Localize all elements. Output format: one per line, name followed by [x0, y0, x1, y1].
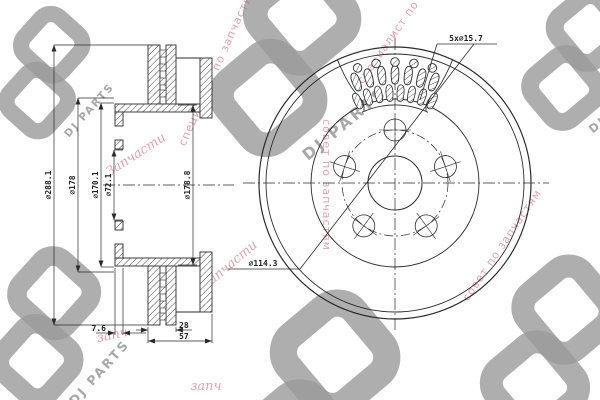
dim-label-pitch-circle: ⌀114.3 — [249, 259, 278, 268]
dim-label-inner-diameter: ⌀178.8 — [183, 170, 192, 199]
dim-label-flange-thickness: 7.6 — [92, 324, 107, 333]
dim-label-disc-thickness: 28 — [179, 321, 189, 330]
dim-label-outer-diameter: ⌀288.1 — [44, 170, 53, 199]
watermark-red-script-left: Запчасти — [103, 130, 168, 180]
dj-logo-bottom-center: DJ PARTS — [208, 294, 453, 400]
dim-label-overall-height: 57 — [179, 332, 189, 341]
watermark-layer: DJ PARTS DJ PARTS DJ PARTS DJ PARTS DJ P… — [0, 0, 600, 400]
dim-label-bolt-holes: 5x⌀15.7 — [449, 34, 483, 43]
dim-label-center-bore: ⌀72.1 — [104, 173, 113, 196]
dim-label-flange-inner: ⌀170.1 — [91, 171, 100, 199]
dj-logo-top-left: DJ PARTS — [0, 8, 127, 154]
dim-label-flange-outer: ⌀178 — [68, 175, 77, 194]
front-view: 5x⌀15.7 ⌀114.3 — [228, 34, 549, 330]
dj-logo-mark — [208, 294, 425, 400]
dj-logo-mark — [505, 0, 600, 128]
technical-drawing-page: DJ PARTS DJ PARTS DJ PARTS DJ PARTS DJ P… — [0, 0, 600, 400]
brake-disc-drawing: DJ PARTS DJ PARTS DJ PARTS DJ PARTS DJ P… — [0, 0, 600, 400]
watermark-red-stamp-bottom: запч — [190, 379, 221, 394]
